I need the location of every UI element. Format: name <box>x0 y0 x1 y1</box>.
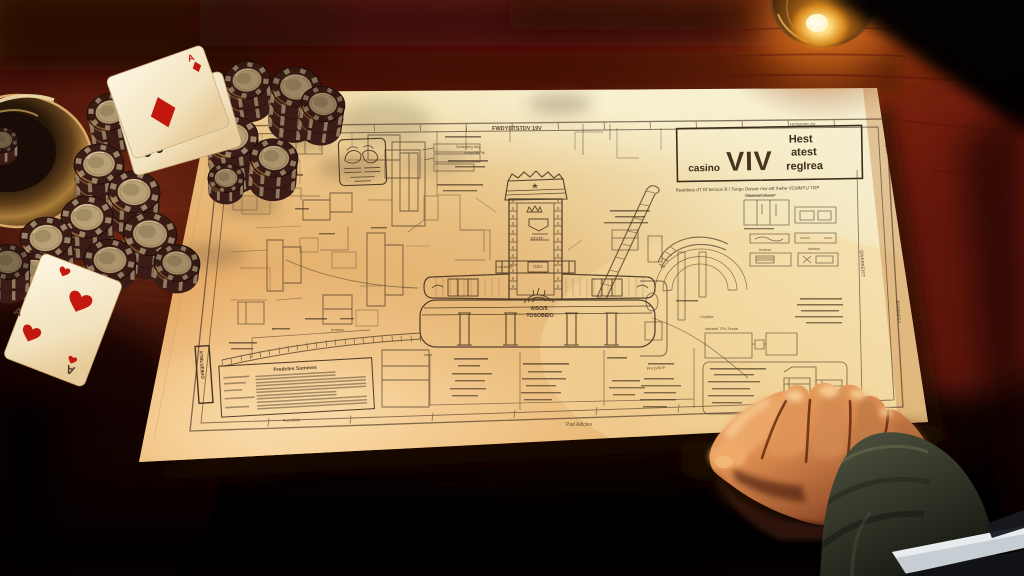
svg-text:TOSOBEIO: TOSOBEIO <box>526 313 553 319</box>
svg-text:FWDYOTSTDV 19V: FWDYOTSTDV 19V <box>492 126 542 132</box>
svg-text:AISO/5: AISO/5 <box>530 306 547 312</box>
svg-text:casino: casino <box>688 163 720 175</box>
svg-text:GSA: GSA <box>533 264 542 269</box>
svg-text:STATF: STATF <box>531 236 544 241</box>
svg-text:VIV: VIV <box>726 146 773 177</box>
svg-text:Iaelaett TPo Tesse: Iaelaett TPo Tesse <box>705 326 739 331</box>
svg-text:Schejrieg deg: Schejrieg deg <box>456 144 480 149</box>
svg-text:VchvGfkPik: VchvGfkPik <box>464 150 485 155</box>
svg-text:Psd Adsis: Psd Adsis <box>283 417 301 423</box>
svg-text:Pad Adicles: Pad Adicles <box>566 422 593 428</box>
svg-text:Iastess: Iastess <box>808 247 820 251</box>
svg-text:Iestess: Iestess <box>759 248 771 252</box>
svg-text:Lcs des 10: Lcs des 10 <box>496 265 513 269</box>
svg-text:Hest: Hest <box>789 133 813 145</box>
svg-text:Tdsaeturdr deumer: Tdsaeturdr deumer <box>744 194 775 198</box>
svg-text:Iseed: Iseed <box>424 353 432 357</box>
svg-text:Ceyflae: Ceyflae <box>700 314 714 319</box>
svg-text:regIrea: regIrea <box>786 160 824 173</box>
svg-text:atest: atest <box>791 146 817 158</box>
